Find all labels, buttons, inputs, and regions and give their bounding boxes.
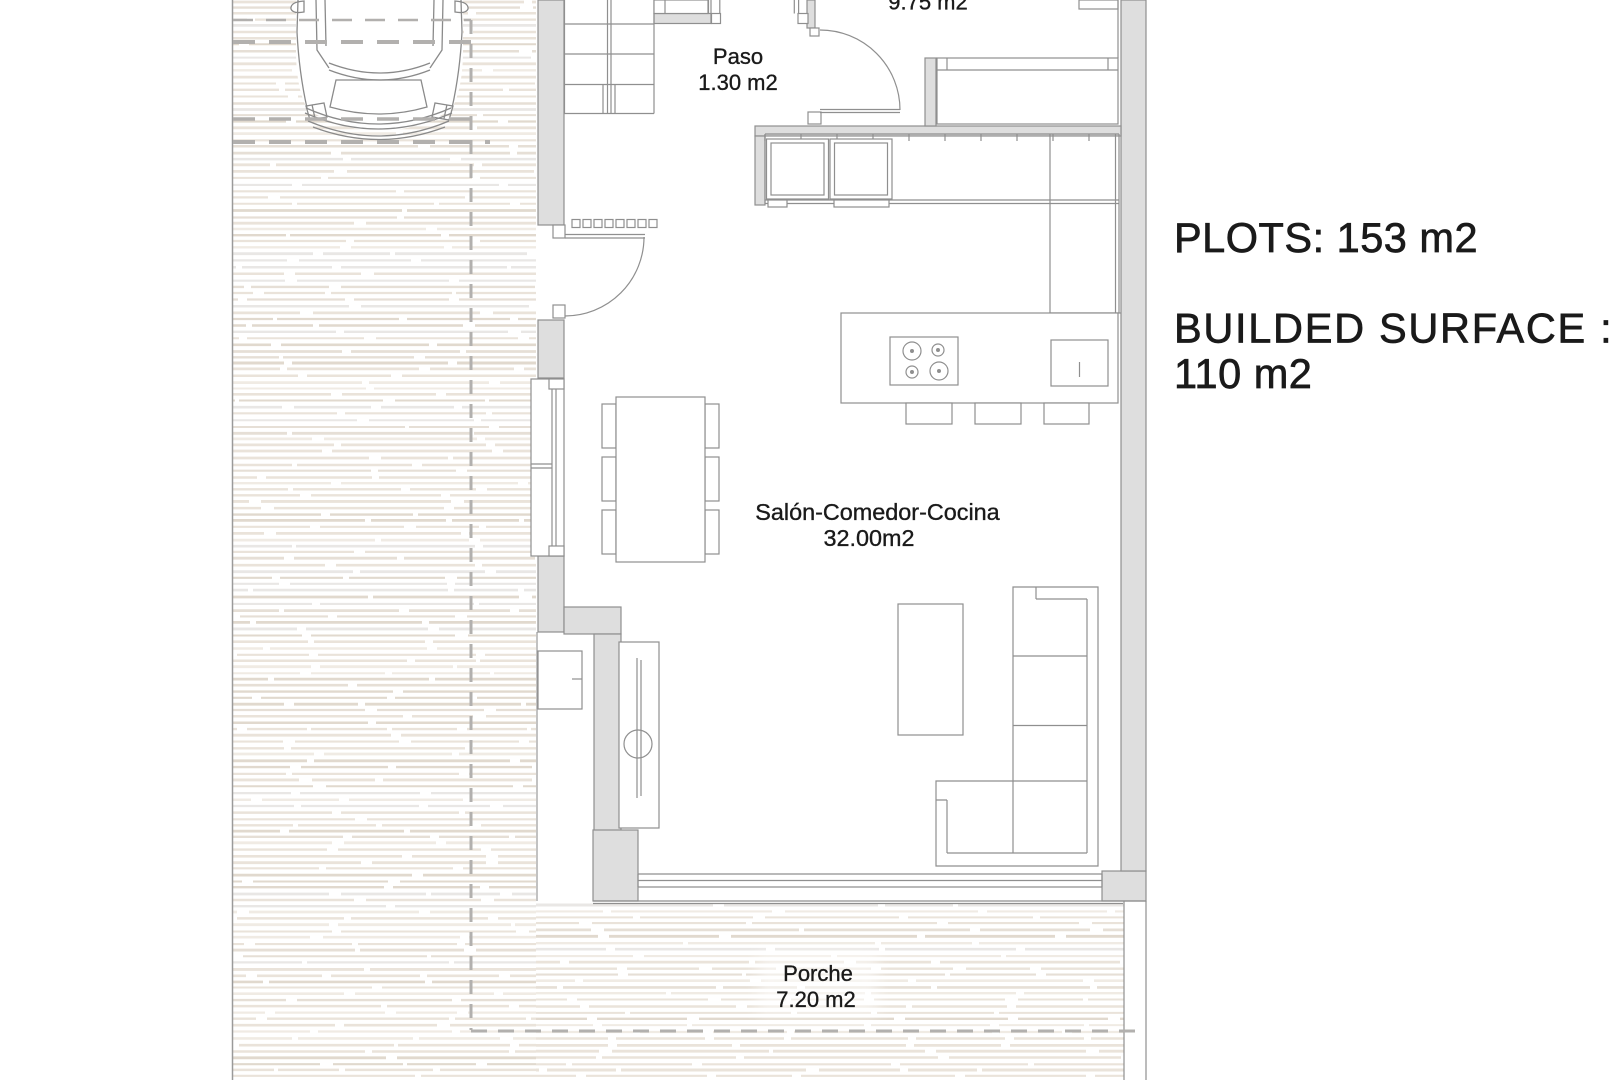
svg-text:7.20 m2: 7.20 m2 — [776, 987, 856, 1012]
svg-text:32.00m2: 32.00m2 — [823, 525, 914, 551]
svg-text:Salón-Comedor-Cocina: Salón-Comedor-Cocina — [755, 499, 1000, 525]
svg-text:110 m2: 110 m2 — [1174, 350, 1312, 397]
svg-text:9.75 m2: 9.75 m2 — [888, 0, 968, 15]
svg-text:PLOTS: 153 m2: PLOTS: 153 m2 — [1174, 214, 1478, 261]
svg-text:BUILDED SURFACE :: BUILDED SURFACE : — [1174, 305, 1613, 352]
svg-text:Paso: Paso — [713, 44, 763, 69]
svg-text:1.30 m2: 1.30 m2 — [698, 70, 778, 95]
svg-text:Porche: Porche — [783, 961, 853, 986]
